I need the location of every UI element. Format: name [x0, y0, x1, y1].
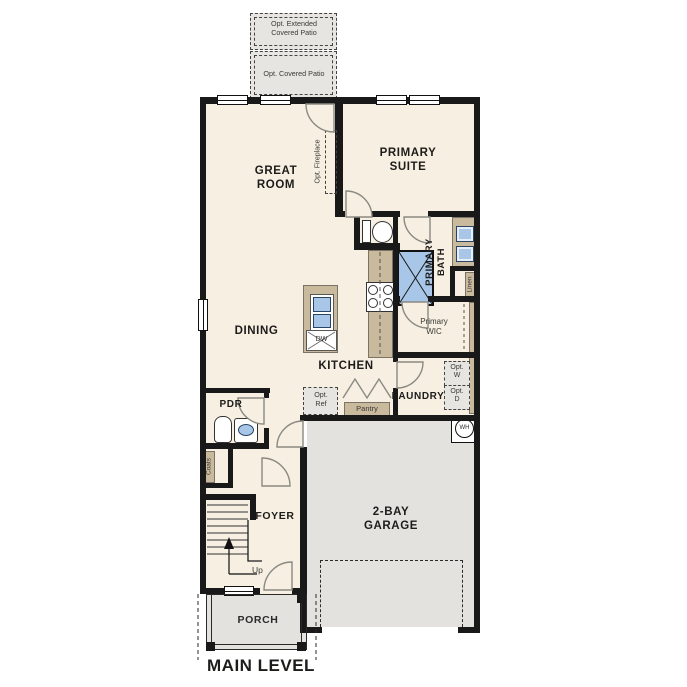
dining-label: DINING [214, 324, 299, 338]
island-sink-basin-bottom [313, 314, 331, 328]
range [366, 282, 395, 312]
wall [206, 443, 269, 449]
garage-door-outline [320, 560, 463, 627]
wall [206, 483, 233, 488]
powder-label: PDR [210, 399, 252, 412]
water-heater-label: WH [455, 419, 474, 438]
window [260, 95, 291, 105]
pantry-label: Pantry [344, 404, 390, 413]
opt-fireplace-outline [325, 130, 337, 194]
window [376, 95, 407, 105]
wall [393, 217, 398, 362]
window [409, 95, 440, 105]
wall [474, 421, 480, 633]
main-level-title: MAIN LEVEL [207, 655, 317, 676]
vanity-sink-2 [456, 246, 474, 262]
bath-toilet-bowl [372, 221, 393, 243]
wall [307, 627, 322, 633]
window [217, 95, 248, 105]
wall [428, 211, 480, 217]
coats-label: Coats [205, 452, 214, 482]
vanity-sink-1 [456, 226, 474, 242]
wall [264, 388, 269, 398]
porch-post [297, 594, 306, 603]
wall [300, 415, 480, 421]
opt-ref-label: Opt. Ref [309, 391, 333, 408]
wall [335, 211, 345, 217]
opt-extended-patio-label: Opt. Extended Covered Patio [259, 20, 329, 37]
bath-toilet-tank [362, 220, 371, 243]
wall [300, 415, 307, 421]
opt-fireplace-label: Opt. Fireplace [314, 131, 325, 193]
foyer-label: FOYER [244, 510, 306, 523]
kitchen-label: KITCHEN [300, 359, 392, 373]
wall [200, 97, 206, 300]
wall [200, 388, 270, 393]
porch-label: PORCH [225, 614, 291, 627]
powder-sink-bowl [238, 424, 254, 436]
garage-label: 2-BAY GARAGE [347, 505, 435, 534]
linen-label: Linen [466, 272, 475, 298]
wall [474, 97, 480, 423]
primary-wic-label: Primary WIC [413, 317, 455, 336]
porch-post [206, 642, 215, 651]
floor-plan: GREAT ROOM PRIMARY SUITE PRIMARY BATH Pr… [0, 0, 687, 687]
primary-bath-label: PRIMARY BATH [421, 232, 451, 292]
opt-dryer-label: Opt. D [447, 388, 467, 405]
powder-toilet [214, 416, 232, 443]
great-room-label: GREAT ROOM [238, 164, 314, 193]
wall [228, 449, 233, 483]
primary-suite-label: PRIMARY SUITE [366, 146, 450, 175]
up-label: Up [252, 565, 272, 575]
island-sink-basin-top [313, 297, 331, 312]
porch-post [297, 642, 306, 651]
wall [206, 494, 256, 500]
opt-washer-label: Opt. W [447, 364, 467, 381]
wall [393, 296, 400, 302]
wall [354, 217, 360, 245]
window [198, 299, 208, 331]
dishwasher-label: DW [306, 336, 337, 344]
wall [458, 627, 480, 633]
wall [393, 352, 480, 358]
opt-covered-patio-label: Opt. Covered Patio [252, 70, 336, 79]
